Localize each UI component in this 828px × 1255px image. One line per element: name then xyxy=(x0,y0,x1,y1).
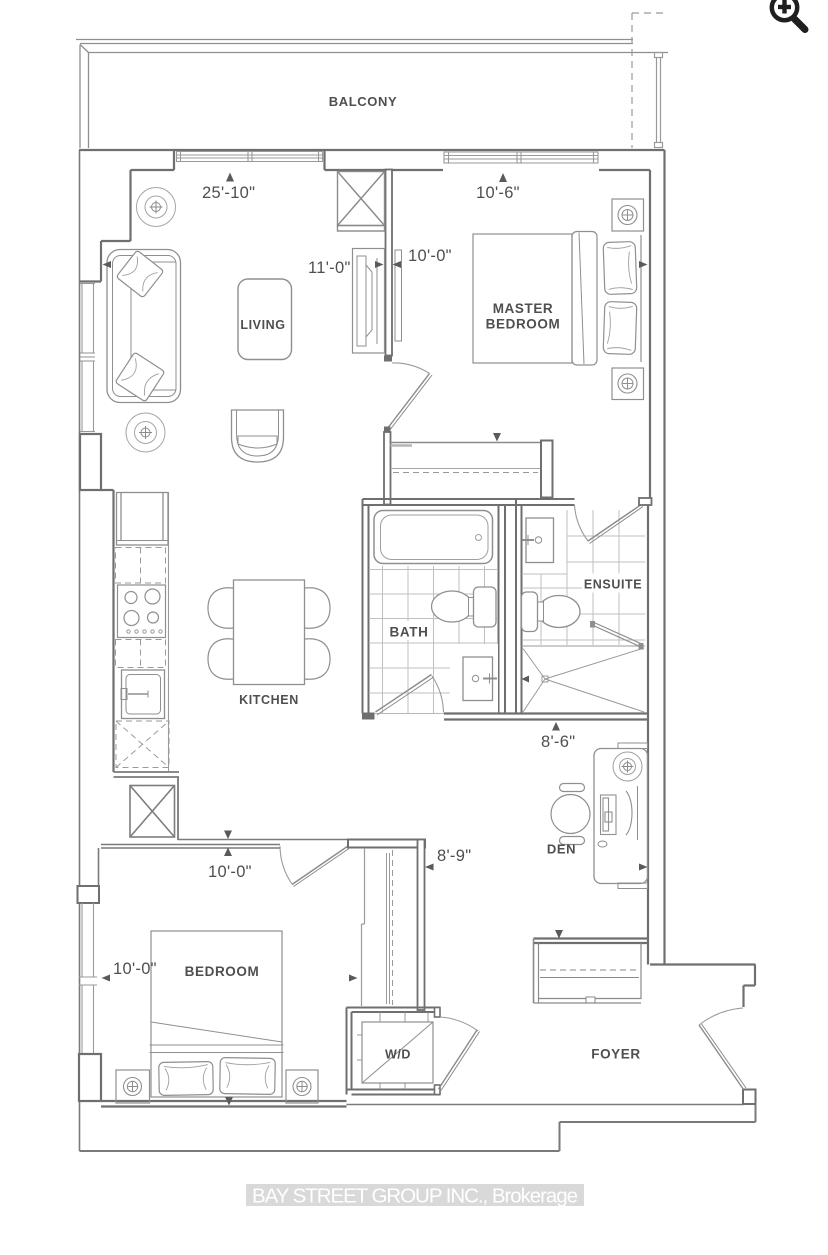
svg-text:LIVING: LIVING xyxy=(240,318,285,332)
svg-text:10'-0": 10'-0" xyxy=(408,247,452,265)
svg-text:25'-10": 25'-10" xyxy=(202,184,255,202)
svg-text:DEN: DEN xyxy=(547,842,576,857)
svg-text:MASTER: MASTER xyxy=(493,301,554,316)
svg-text:W/D: W/D xyxy=(385,1048,411,1062)
svg-text:KITCHEN: KITCHEN xyxy=(239,693,299,707)
svg-text:BATH: BATH xyxy=(390,625,429,640)
svg-text:11'-0": 11'-0" xyxy=(308,259,351,277)
svg-text:BEDROOM: BEDROOM xyxy=(486,317,561,332)
svg-text:BEDROOM: BEDROOM xyxy=(185,964,260,979)
svg-text:8'-6": 8'-6" xyxy=(541,733,575,751)
svg-text:10'-6": 10'-6" xyxy=(476,184,520,202)
svg-text:BALCONY: BALCONY xyxy=(329,94,397,109)
svg-text:10'-0": 10'-0" xyxy=(208,863,252,881)
svg-text:8'-9": 8'-9" xyxy=(437,847,471,865)
svg-text:ENSUITE: ENSUITE xyxy=(584,578,642,592)
svg-text:BAY STREET GROUP INC., Brokera: BAY STREET GROUP INC., Brokerage xyxy=(252,1185,578,1208)
svg-text:10'-0": 10'-0" xyxy=(113,960,157,978)
svg-text:FOYER: FOYER xyxy=(591,1047,641,1062)
